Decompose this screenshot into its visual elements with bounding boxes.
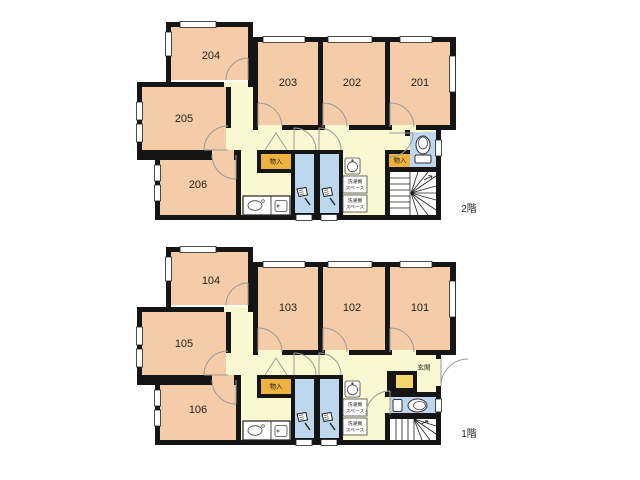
washer-space-1-label-l1: 洗濯機	[348, 401, 363, 408]
floor-2-label: 2階	[461, 203, 477, 215]
stairs-1f	[385, 413, 441, 445]
shower-room-2-2f	[316, 150, 343, 217]
shower-room-2-1f	[316, 375, 343, 442]
room-201-label: 201	[411, 77, 429, 89]
storage-label-hall-2f: 物入	[270, 157, 284, 166]
washer-space-2-label-l2: スペース	[346, 428, 365, 434]
washbasin-2f	[345, 158, 360, 174]
floor-plan-image: 201 202 203 204 205 206 物入 物入 洗濯機 スペース 洗…	[0, 0, 640, 480]
toilet-room-1f	[385, 392, 441, 413]
room-105-label: 105	[175, 338, 193, 350]
kitchen-sink-icon	[248, 201, 262, 211]
room-206-label: 206	[189, 179, 207, 191]
kitchen-counter-2f	[243, 196, 290, 215]
washer-space-2-label-l1: 洗濯機	[348, 420, 363, 427]
storage-label-stairs-2f: 物入	[394, 156, 408, 165]
washer-space-1-label-l1: 洗濯機	[348, 178, 363, 185]
room-104-label: 104	[202, 275, 220, 287]
room-203-label: 203	[279, 77, 297, 89]
washbasin-icon	[351, 382, 353, 384]
room-106-label: 106	[189, 404, 207, 416]
washer-space-1-label-l2: スペース	[346, 409, 365, 415]
floor-2-plan: 201 202 203 204 205 206 物入 物入 洗濯機 スペース 洗…	[137, 22, 477, 221]
room-204-label: 204	[202, 50, 220, 62]
washer-space-1-label-l2: スペース	[346, 186, 365, 192]
floor-1-label: 1階	[461, 428, 477, 440]
room-102-label: 102	[343, 302, 361, 314]
kitchen-sink-icon	[248, 426, 262, 436]
stairs-2f	[385, 167, 441, 220]
entrance-label: 玄関	[418, 363, 431, 372]
shower-room-1-1f	[291, 375, 318, 442]
room-205-label: 205	[175, 113, 193, 125]
washbasin-icon	[351, 159, 353, 161]
kitchen-counter-1f	[243, 421, 290, 440]
shower-room-1-2f	[291, 150, 318, 217]
room-103-label: 103	[279, 302, 297, 314]
room-101-label: 101	[411, 302, 429, 314]
washbasin-1f	[345, 381, 360, 397]
storage-label-hall-1f: 物入	[270, 382, 284, 391]
washer-space-2-label-l1: 洗濯機	[348, 197, 363, 204]
entrance-door-arc	[441, 359, 468, 386]
toilet-room-2f	[410, 132, 436, 167]
floor-1-plan: 101 102 103 104 105 106 物入 玄関 洗濯機 スペース 洗…	[137, 247, 477, 446]
washer-space-2-label-l2: スペース	[346, 205, 365, 211]
room-202-label: 202	[343, 77, 361, 89]
floor-plan-svg: 201 202 203 204 205 206 物入 物入 洗濯機 スペース 洗…	[0, 0, 640, 480]
shoe-cabinet-1f	[387, 371, 417, 392]
